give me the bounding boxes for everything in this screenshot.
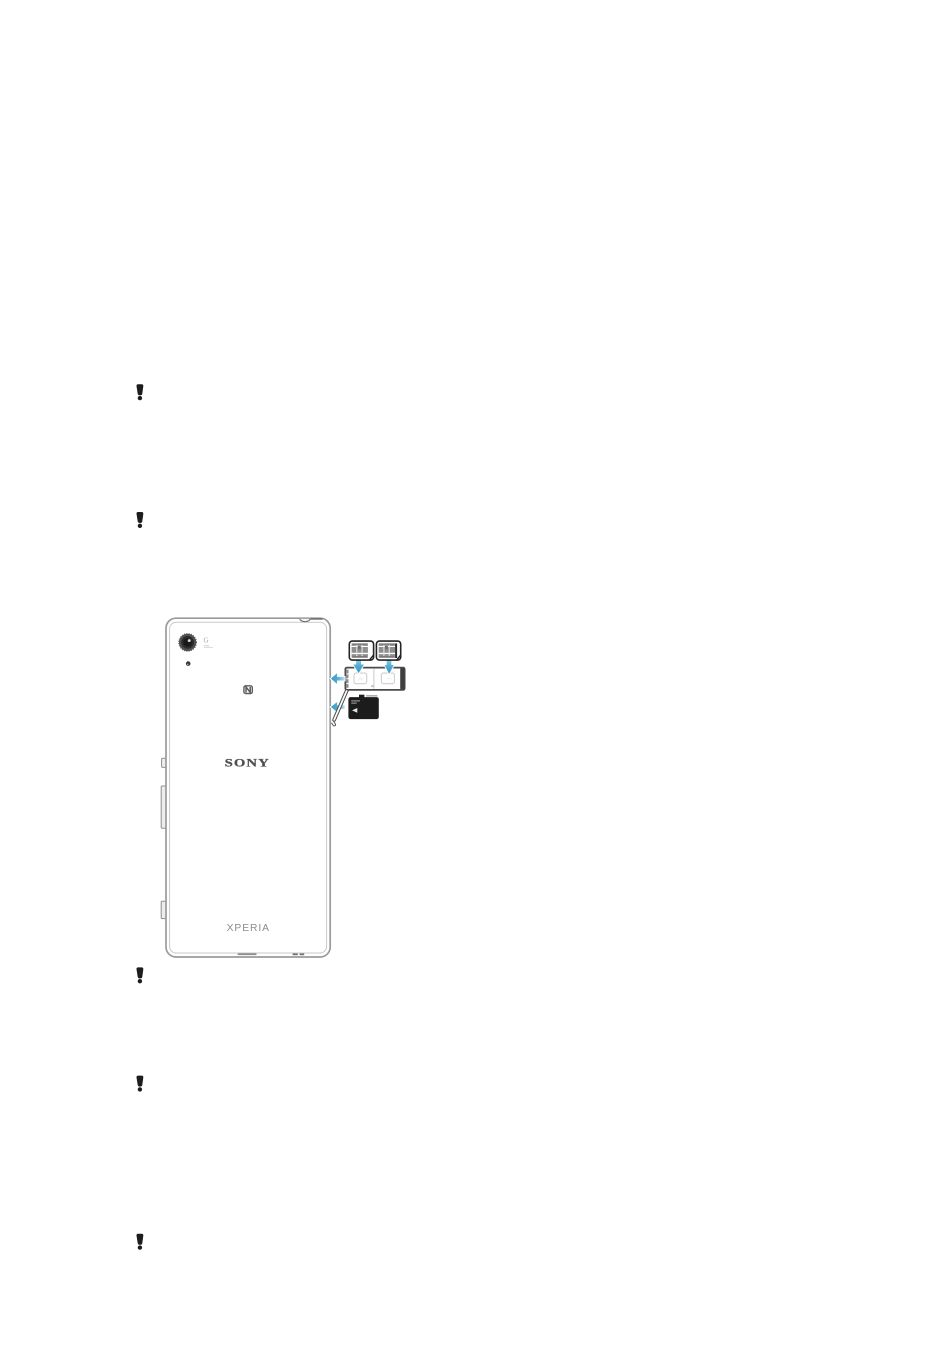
svg-text:XPERIA: XPERIA (227, 923, 271, 934)
svg-text:G: G (204, 637, 209, 645)
svg-text:SONY: SONY (225, 757, 270, 769)
